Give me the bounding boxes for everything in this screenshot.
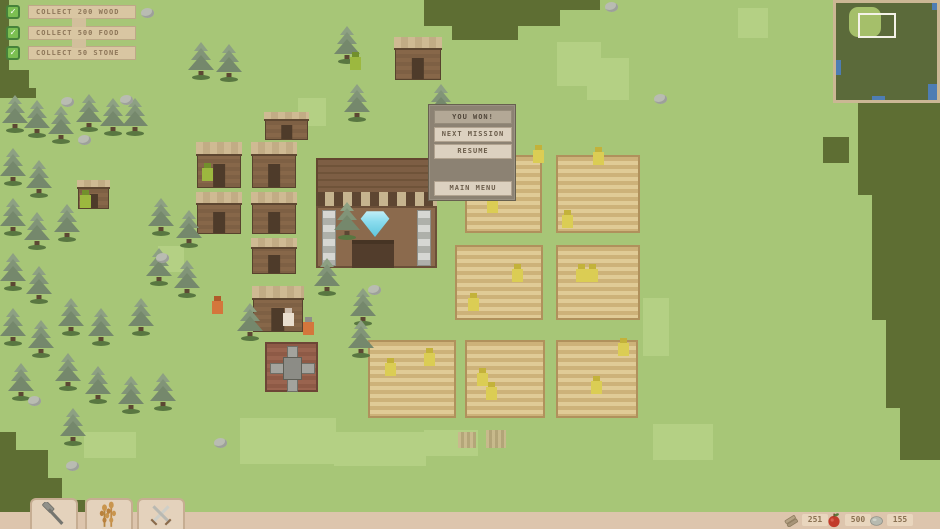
tree-shadow [178,293,196,298]
dark-terrain-patch [560,0,600,10]
turret-center [283,357,302,380]
tree-shadow [28,245,46,250]
tree[interactable] [58,298,84,336]
tree-shadow [352,353,370,358]
tree-foliage [0,321,26,336]
tree[interactable] [76,94,102,132]
tree-foliage [150,386,176,401]
house[interactable] [197,192,241,234]
light-grass-patch [240,418,336,464]
tree[interactable] [0,308,26,346]
villager-yellow[interactable] [562,210,573,228]
villager-yellow[interactable] [576,264,587,282]
tree-foliage [188,55,214,70]
stone[interactable] [66,461,79,471]
tree-foliage [0,211,26,226]
tree-shadow [4,286,22,291]
tree-foliage [344,97,370,112]
tree[interactable] [348,320,374,358]
tree-shadow [30,193,48,198]
villager-yellow[interactable] [424,348,435,366]
tree-foliage [216,57,242,72]
tree-foliage [24,225,50,240]
build-tool-button[interactable] [30,498,78,529]
tree[interactable] [48,106,74,144]
tree[interactable] [60,408,86,446]
tree-shadow [4,181,22,186]
tree-foliage [334,215,360,230]
tree-foliage [28,333,54,348]
dark-terrain-patch [823,137,849,163]
tree[interactable] [314,258,340,296]
tree[interactable] [128,298,154,336]
dark-terrain-patch [28,88,36,98]
house[interactable] [252,192,296,234]
tree-shadow [32,353,50,358]
resume-button[interactable]: RESUME [434,144,512,159]
dark-terrain-patch [452,26,518,40]
villager-yellow[interactable] [587,264,598,282]
tree-foliage [0,161,26,176]
tree-foliage [348,333,374,348]
quest-label: COLLECT 50 STONE [28,46,136,60]
villager-body [533,150,544,163]
tree[interactable] [150,373,176,411]
tree-shadow [241,336,259,341]
dark-terrain-patch [9,70,29,98]
tree[interactable] [344,84,370,122]
tree-shadow [192,75,210,80]
light-grass-patch [587,58,629,100]
tree-shadow [6,128,24,133]
tree-foliage [26,173,52,188]
villager-body [587,269,598,282]
game-viewport: ✓ COLLECT 200 WOOD ✓ COLLECT 500 FOOD ✓ … [0,0,940,529]
minimap-water-patch [872,96,885,100]
tree[interactable] [176,210,202,248]
farm-plot[interactable] [368,340,456,418]
tree[interactable] [0,148,26,186]
tree[interactable] [148,198,174,236]
stone[interactable] [78,135,91,145]
villager-body [283,313,294,326]
villager-body [591,381,602,394]
villager-body [486,387,497,400]
tree-shadow [28,133,46,138]
tree-shadow [58,237,76,242]
villager-yellow[interactable] [593,147,604,165]
dialog-title: YOU WON! [434,110,512,124]
checkmark-icon: ✓ [10,7,15,17]
tree-foliage [76,107,102,122]
tree[interactable] [174,260,200,298]
town-hall-door [352,240,394,268]
tree[interactable] [85,366,111,404]
villager-body [562,215,573,228]
tree-shadow [152,231,170,236]
tree-foliage [174,273,200,288]
house[interactable] [395,37,441,80]
tree-foliage [128,311,154,326]
tree-shadow [89,399,107,404]
villager-green[interactable] [202,163,213,181]
house[interactable] [252,142,296,188]
minimap-viewport[interactable] [858,13,896,38]
stone[interactable] [214,438,227,448]
tree[interactable] [0,253,26,291]
tree-foliage [0,266,26,281]
house[interactable] [265,112,308,140]
construction-marker[interactable] [486,430,506,448]
tree[interactable] [334,202,360,240]
dark-terrain-patch [424,0,560,26]
tree[interactable] [55,353,81,391]
minimap-water-patch [928,84,937,100]
tree[interactable] [24,212,50,250]
villager-body [512,269,523,282]
main-menu-button[interactable]: MAIN MENU [434,181,512,196]
turret-platform[interactable] [265,342,318,392]
tree-shadow [4,231,22,236]
villager-yellow[interactable] [385,358,396,376]
tree-foliage [54,217,80,232]
minimap-water-patch [932,3,937,10]
tree-shadow [348,117,366,122]
villager-body [80,195,91,208]
minimap-water-patch [836,60,841,75]
wheat-icon [94,501,124,528]
stone[interactable] [156,253,169,263]
quest-item: ✓ COLLECT 500 FOOD [6,26,136,40]
tree[interactable] [188,42,214,80]
villager-yellow[interactable] [486,382,497,400]
stone-count: 155 [887,514,913,526]
dark-terrain-patch [886,320,940,408]
house[interactable] [252,238,296,274]
military-tool-button[interactable] [137,498,185,529]
tree[interactable] [24,100,50,138]
minimap[interactable] [833,0,940,103]
tree[interactable] [0,198,26,236]
villager-body [212,301,223,314]
tree[interactable] [26,160,52,198]
quest-item: ✓ COLLECT 200 WOOD [6,5,136,19]
tree-shadow [62,331,80,336]
diamond-icon [360,209,390,237]
villager-body [303,322,314,335]
villager-orange[interactable] [212,296,223,314]
tree-foliage [26,279,52,294]
town-hall-column-right [417,210,431,266]
tree-shadow [52,139,70,144]
stone[interactable] [120,95,133,105]
dark-terrain-patch [872,195,940,320]
quest-label: COLLECT 200 WOOD [28,5,136,19]
tree-shadow [126,131,144,136]
tree-foliage [350,301,376,316]
light-grass-patch [334,432,426,466]
tree-shadow [220,77,238,82]
victory-dialog: YOU WON! NEXT MISSION RESUME MAIN MENU [428,104,516,201]
tree-shadow [122,409,140,414]
stone[interactable] [368,285,381,295]
villager-green[interactable] [80,190,91,208]
tree-shadow [80,127,98,132]
tree[interactable] [8,363,34,401]
construction-marker[interactable] [458,432,476,448]
wood-count: 251 [802,514,828,526]
tree-shadow [180,243,198,248]
tree-shadow [92,341,110,346]
quest-checkbox: ✓ [6,46,20,60]
tree-foliage [237,316,263,331]
quest-banner-tab [72,18,86,27]
villager-body [487,200,498,213]
quest-item: ✓ COLLECT 50 STONE [6,46,136,60]
tree-foliage [88,321,114,336]
villager-pale[interactable] [283,308,294,326]
checkmark-icon: ✓ [10,48,15,58]
quest-banner-tab [72,39,86,48]
crossed-swords-icon [144,502,178,528]
villager-body [593,152,604,165]
wood-logs-icon [784,514,799,527]
tree-shadow [154,406,172,411]
quest-checkbox: ✓ [6,5,20,19]
tree-foliage [146,261,172,276]
tree[interactable] [118,376,144,414]
villager-body [385,363,396,376]
tree-foliage [118,389,144,404]
tree[interactable] [26,266,52,304]
tree-shadow [104,131,122,136]
town-hall-roof [316,158,437,194]
tree-foliage [85,379,111,394]
villager-yellow[interactable] [533,145,544,163]
food-counter: 500 [826,513,871,527]
light-grass-patch [738,8,768,38]
tree-shadow [338,235,356,240]
tree[interactable] [54,204,80,242]
villager-body [468,298,479,311]
stone[interactable] [28,396,41,406]
checkmark-icon: ✓ [10,28,15,38]
villager-body [424,353,435,366]
hammer-icon [38,502,70,527]
light-grass-patch [643,298,669,356]
tree-shadow [318,291,336,296]
tree-shadow [30,299,48,304]
villager-body [350,57,361,70]
apple-icon [826,512,842,528]
tree-foliage [314,271,340,286]
quest-label: COLLECT 500 FOOD [28,26,136,40]
dark-terrain-patch [900,408,940,460]
stone-icon [869,514,884,526]
villager-yellow[interactable] [618,338,629,356]
light-grass-patch [84,432,136,458]
tree-foliage [48,119,74,134]
tree[interactable] [28,320,54,358]
dark-terrain-patch [858,103,940,195]
food-count: 500 [845,514,871,526]
tree-foliage [58,311,84,326]
quest-checkbox: ✓ [6,26,20,40]
stone-counter: 155 [869,513,913,527]
tree-shadow [4,341,22,346]
tree-shadow [59,386,77,391]
villager-body [576,269,587,282]
tree-shadow [64,441,82,446]
next-mission-button[interactable]: NEXT MISSION [434,127,512,142]
tree-foliage [60,421,86,436]
wood-counter: 251 [784,513,828,527]
tree-foliage [8,376,34,391]
tree[interactable] [88,308,114,346]
tree[interactable] [216,44,242,82]
light-grass-patch [653,424,713,460]
villager-orange-hat[interactable] [303,317,314,335]
tree-shadow [150,281,168,286]
tree-foliage [176,223,202,238]
tree-foliage [148,211,174,226]
tree-foliage [55,366,81,381]
tree-foliage [122,111,148,126]
stone[interactable] [654,94,667,104]
tree-foliage [24,113,50,128]
stone[interactable] [605,2,618,12]
tree[interactable] [237,303,263,341]
villager-yellow[interactable] [468,293,479,311]
quest-panel: ✓ COLLECT 200 WOOD ✓ COLLECT 500 FOOD ✓ … [0,0,170,70]
villager-green[interactable] [350,52,361,70]
villager-yellow[interactable] [591,376,602,394]
villager-body [618,343,629,356]
stone[interactable] [61,97,74,107]
villager-yellow[interactable] [512,264,523,282]
farm-tool-button[interactable] [85,498,133,529]
farm-plot[interactable] [556,245,640,320]
villager-body [202,168,213,181]
tree-shadow [132,331,150,336]
